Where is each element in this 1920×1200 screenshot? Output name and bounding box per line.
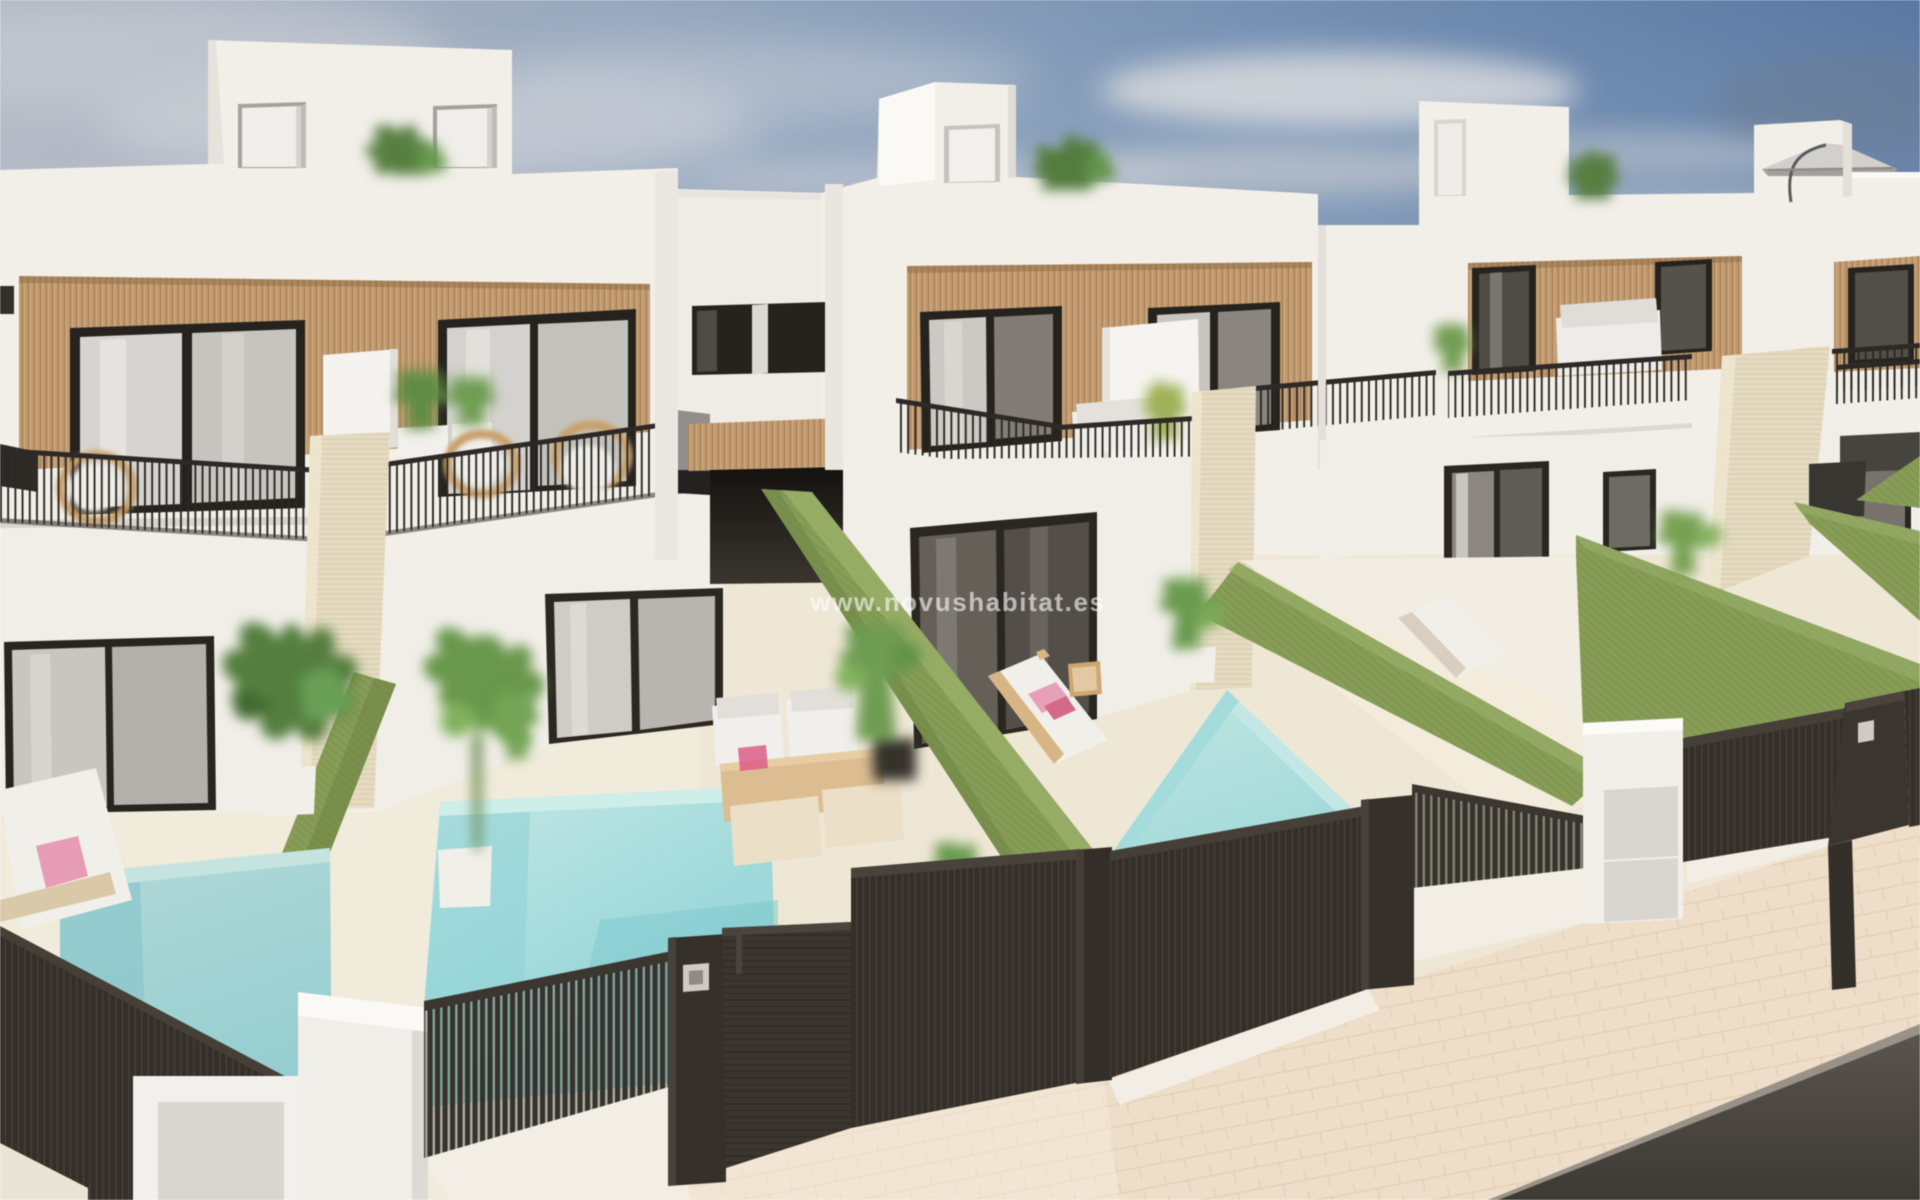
svg-text:www.novushabitat.es: www.novushabitat.es (809, 587, 1105, 617)
